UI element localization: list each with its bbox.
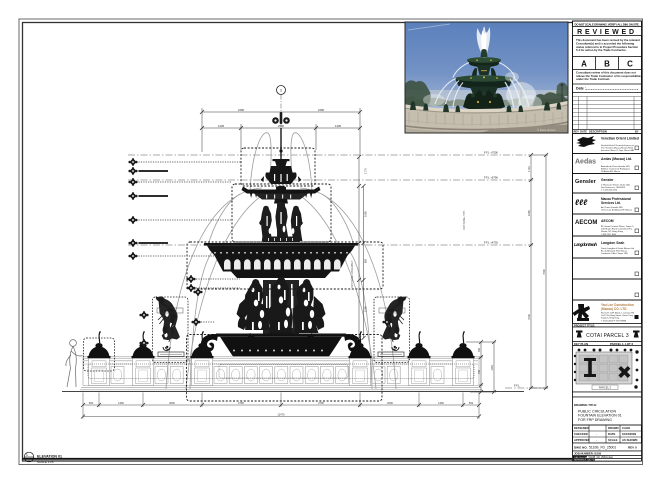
svg-text:2600: 2600 (387, 401, 393, 405)
svg-text:1495: 1495 (218, 124, 225, 128)
svg-text:Services Ltd.: Services Ltd. (601, 201, 621, 205)
svg-text:10-12 Ka Hing Street, Kwun Ton: 10-12 Ka Hing Street, Kwun Tong (601, 314, 634, 317)
svg-text:SCALE: SCALE (608, 438, 618, 442)
svg-text:Gensler: Gensler (575, 179, 597, 185)
svg-text:PARCEL 3: PARCEL 3 (599, 386, 612, 390)
svg-text:B: B (604, 59, 610, 68)
svg-text:APPROVED: APPROVED (574, 438, 590, 442)
svg-text:FOR FRP DRAWING: FOR FRP DRAWING (578, 418, 612, 422)
svg-text:T 852.2317.7600: T 852.2317.7600 (601, 234, 617, 236)
svg-text:Av. Praia Grande 409,: Av. Praia Grande 409, (601, 206, 623, 209)
svg-text:2486: 2486 (238, 108, 245, 112)
svg-text:2700: 2700 (318, 401, 324, 405)
svg-text:CHECKED: CHECKED (574, 432, 588, 436)
svg-text:7500: 7500 (542, 269, 546, 275)
svg-text:5.4 for action by the Trade Co: 5.4 for action by the Trade Contractor. (576, 48, 627, 52)
svg-text:F.F.L.: F.F.L. (514, 383, 521, 387)
svg-text:REV: REV (574, 130, 580, 134)
svg-text:Av. da Amizade 555, Macau: Av. da Amizade 555, Macau (601, 250, 628, 253)
svg-text:8F Grand Central Plaza, Tower: 8F Grand Central Plaza, Tower 2, (601, 225, 634, 228)
svg-text:2600: 2600 (169, 401, 175, 405)
svg-text:REV 0: REV 0 (628, 445, 637, 449)
svg-text:FRP PANEL TYP.: FRP PANEL TYP. (463, 210, 466, 230)
svg-text:AECOM: AECOM (601, 219, 614, 223)
svg-text:10/04/2009: 10/04/2009 (622, 432, 636, 436)
svg-text:Executive Offices-L2, Taipa, M: Executive Offices-L2, Taipa, Macau SAR (601, 149, 634, 152)
svg-text:1080: 1080 (364, 306, 368, 312)
svg-text:LangdonSeah: LangdonSeah (574, 242, 597, 247)
svg-text:DATE: DATE (608, 432, 616, 436)
svg-text:DRAWN: DRAWN (608, 426, 619, 430)
svg-text:500: 500 (469, 401, 474, 405)
svg-text:Aedas: Aedas (575, 159, 596, 166)
svg-text:REFERENCE CAD FILE NAME: REFERENCE CAD FILE NAME (574, 459, 603, 462)
svg-text:DO NOT SCALE DRAWING. VERIFY A: DO NOT SCALE DRAWING. VERIFY ALL DIM. ON… (575, 23, 640, 27)
svg-text:T 2341.0000 F 2797.8998: T 2341.0000 F 2797.8998 (601, 320, 627, 322)
svg-text:1060: 1060 (364, 211, 368, 217)
svg-text:350: 350 (478, 347, 481, 352)
svg-text:Flat D-H, 10/F, Block 2, Camoe: Flat D-H, 10/F, Block 2, Camoes Rd (601, 312, 635, 315)
svg-text:Avenida da Praia Grande 599,: Avenida da Praia Grande 599, (601, 165, 630, 168)
svg-text:2 Harrison Street, Suite 400: 2 Harrison Street, Suite 400 (601, 184, 631, 187)
svg-text:San Francisco, CA 94105: San Francisco, CA 94105 (601, 186, 626, 189)
svg-text:(Macau) CO. LTD.: (Macau) CO. LTD. (601, 307, 627, 311)
svg-text:ℓℓℓ: ℓℓℓ (575, 198, 588, 207)
svg-text:C: C (627, 59, 633, 68)
svg-text:138 Shatin Rural Committee Rd,: 138 Shatin Rural Committee Rd, (601, 228, 632, 231)
svg-text:680: 680 (364, 258, 368, 263)
svg-text:1060: 1060 (527, 210, 531, 216)
svg-text:Date :: Date : (576, 87, 586, 91)
svg-text:Gensler: Gensler (601, 178, 614, 182)
svg-text:Langdon Seah: Langdon Seah (601, 241, 624, 245)
svg-text:1710: 1710 (527, 166, 531, 172)
svg-text:AECOM: AECOM (575, 220, 597, 226)
svg-text:Aedas (Macau) Ltd.: Aedas (Macau) Ltd. (601, 157, 632, 161)
svg-text:JOB NUMBER: B105: JOB NUMBER: B105 (574, 452, 602, 456)
svg-text:F.F.L +7500: F.F.L +7500 (484, 151, 498, 155)
svg-text:4730: 4730 (527, 314, 531, 320)
svg-text:2990: 2990 (278, 124, 285, 128)
svg-text:under the Trade Contract.: under the Trade Contract. (576, 77, 610, 81)
svg-text:700: 700 (478, 369, 481, 374)
svg-text:11470: 11470 (277, 412, 285, 416)
svg-text:2486: 2486 (318, 108, 325, 112)
svg-text:BY: BY (635, 130, 639, 134)
svg-text:18 Andar A-B, Macau: 18 Andar A-B, Macau (601, 170, 621, 173)
svg-text:DWG NO.: DWG NO. (574, 445, 588, 449)
svg-text:© Paris photos: © Paris photos (537, 128, 556, 132)
svg-text:F.F.L +4730: F.F.L +4730 (484, 241, 498, 245)
svg-text:1770: 1770 (364, 168, 368, 174)
svg-text:DRAWING TITLE:: DRAWING TITLE: (574, 403, 597, 407)
svg-text:Shatin, NT, Hong Kong: Shatin, NT, Hong Kong (601, 230, 624, 233)
svg-text:Davis Langdon & Seah Macau Ltd: Davis Langdon & Seah Macau Ltd (601, 247, 635, 250)
svg-text:The Venetian Macao-Resort-Hote: The Venetian Macao-Resort-Hotel (601, 147, 633, 150)
svg-text:COTAI PARCEL 3: COTAI PARCEL 3 (586, 333, 629, 339)
svg-text:Estrada da Baia de N. Senhora: Estrada da Baia de N. Senhora da Esperan… (601, 144, 635, 147)
svg-text:China Law Building 21/F, Macau: China Law Building 21/F, Macau (601, 210, 633, 212)
svg-text:REVIEWED: REVIEWED (577, 29, 637, 36)
svg-text:1495: 1495 (335, 124, 342, 128)
svg-text:1250: 1250 (491, 365, 494, 371)
svg-text:DESIGNED: DESIGNED (574, 426, 589, 430)
svg-text:A: A (581, 59, 587, 68)
svg-text:1350: 1350 (118, 401, 124, 405)
svg-text:SCALE 1:25: SCALE 1:25 (37, 460, 54, 464)
svg-text:DESCRIPTION: DESCRIPTION (589, 130, 607, 134)
svg-text:CAHO: CAHO (622, 426, 631, 430)
svg-text:-: - (596, 438, 597, 442)
svg-text:FRP PANEL ASSEMBLY: FRP PANEL ASSEMBLY (351, 260, 354, 288)
svg-text:5110B_FD_25001: 5110B_FD_25001 (589, 445, 616, 449)
svg-text:500: 500 (89, 401, 94, 405)
svg-text:AS SHOWN: AS SHOWN (622, 438, 637, 442)
svg-text:T 1.415.433.3700: T 1.415.433.3700 (601, 190, 618, 192)
svg-text:DATE: DATE (580, 130, 587, 134)
svg-text:1350: 1350 (438, 401, 444, 405)
svg-text:F.F.L +5790: F.F.L +5790 (484, 176, 498, 180)
svg-text:Venetian Orient Limited: Venetian Orient Limited (601, 137, 639, 141)
svg-text:ELEVATION 01: ELEVATION 01 (37, 454, 62, 458)
svg-text:1: 1 (26, 453, 28, 457)
svg-text:Landmark Office Tower 19/F: Landmark Office Tower 19/F (601, 252, 629, 255)
svg-text:-: - (596, 432, 597, 436)
svg-text:Edificio Comercial Rodrigues: Edificio Comercial Rodrigues (601, 168, 631, 171)
svg-text:2700: 2700 (238, 401, 244, 405)
